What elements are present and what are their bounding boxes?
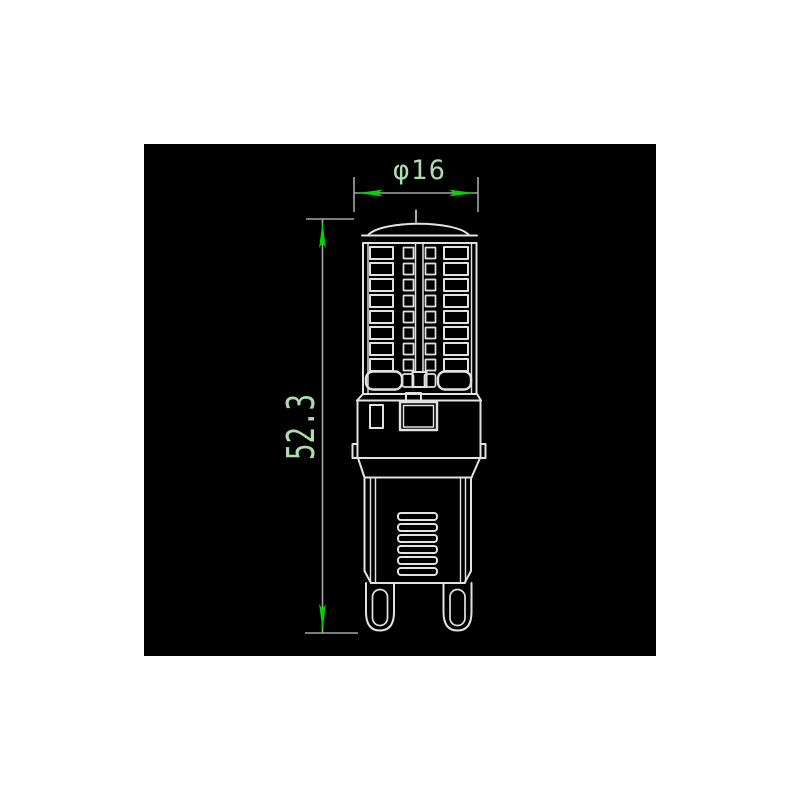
technical-drawing: φ16 52.3 [0, 0, 800, 800]
page: φ16 52.3 [0, 0, 800, 800]
height-label: 52.3 [279, 394, 323, 460]
diameter-label: φ16 [393, 155, 445, 186]
